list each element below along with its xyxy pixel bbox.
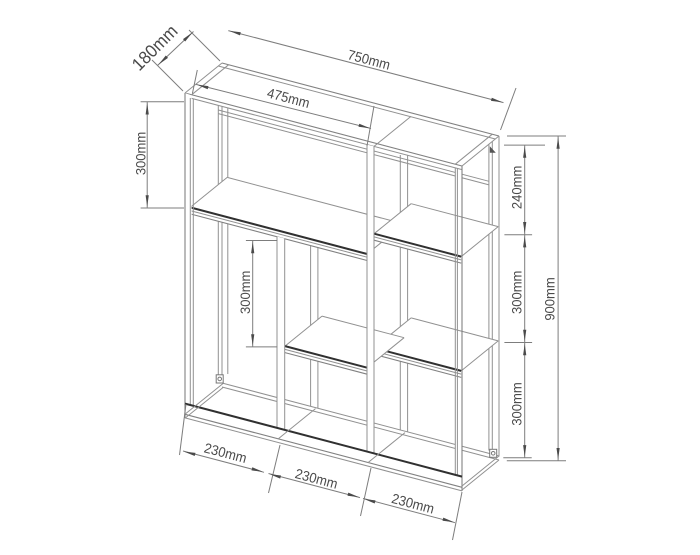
svg-text:300mm: 300mm	[509, 382, 525, 425]
svg-text:300mm: 300mm	[238, 271, 254, 314]
svg-text:240mm: 240mm	[509, 166, 525, 209]
svg-text:300mm: 300mm	[509, 271, 525, 314]
svg-text:300mm: 300mm	[133, 132, 149, 175]
svg-text:900mm: 900mm	[542, 277, 558, 320]
